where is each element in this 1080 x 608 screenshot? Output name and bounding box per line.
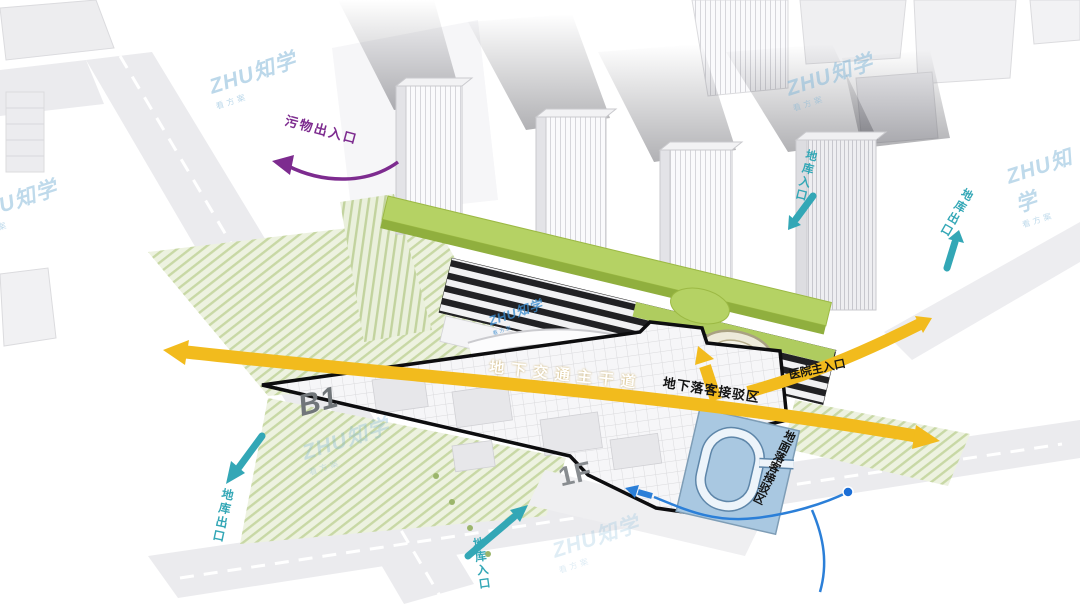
dropoff-loop-area xyxy=(676,408,801,535)
diagram-scene xyxy=(0,0,1080,608)
purple-arrowhead xyxy=(272,155,294,175)
route-node-dot xyxy=(843,487,853,497)
site-circulation-diagram: 污物出入口 地下交通主干道 地下落客接驳区 医院主入口 地面落客接驳区 地库出口… xyxy=(0,0,1080,608)
yellow-arrowhead-west xyxy=(163,340,189,365)
